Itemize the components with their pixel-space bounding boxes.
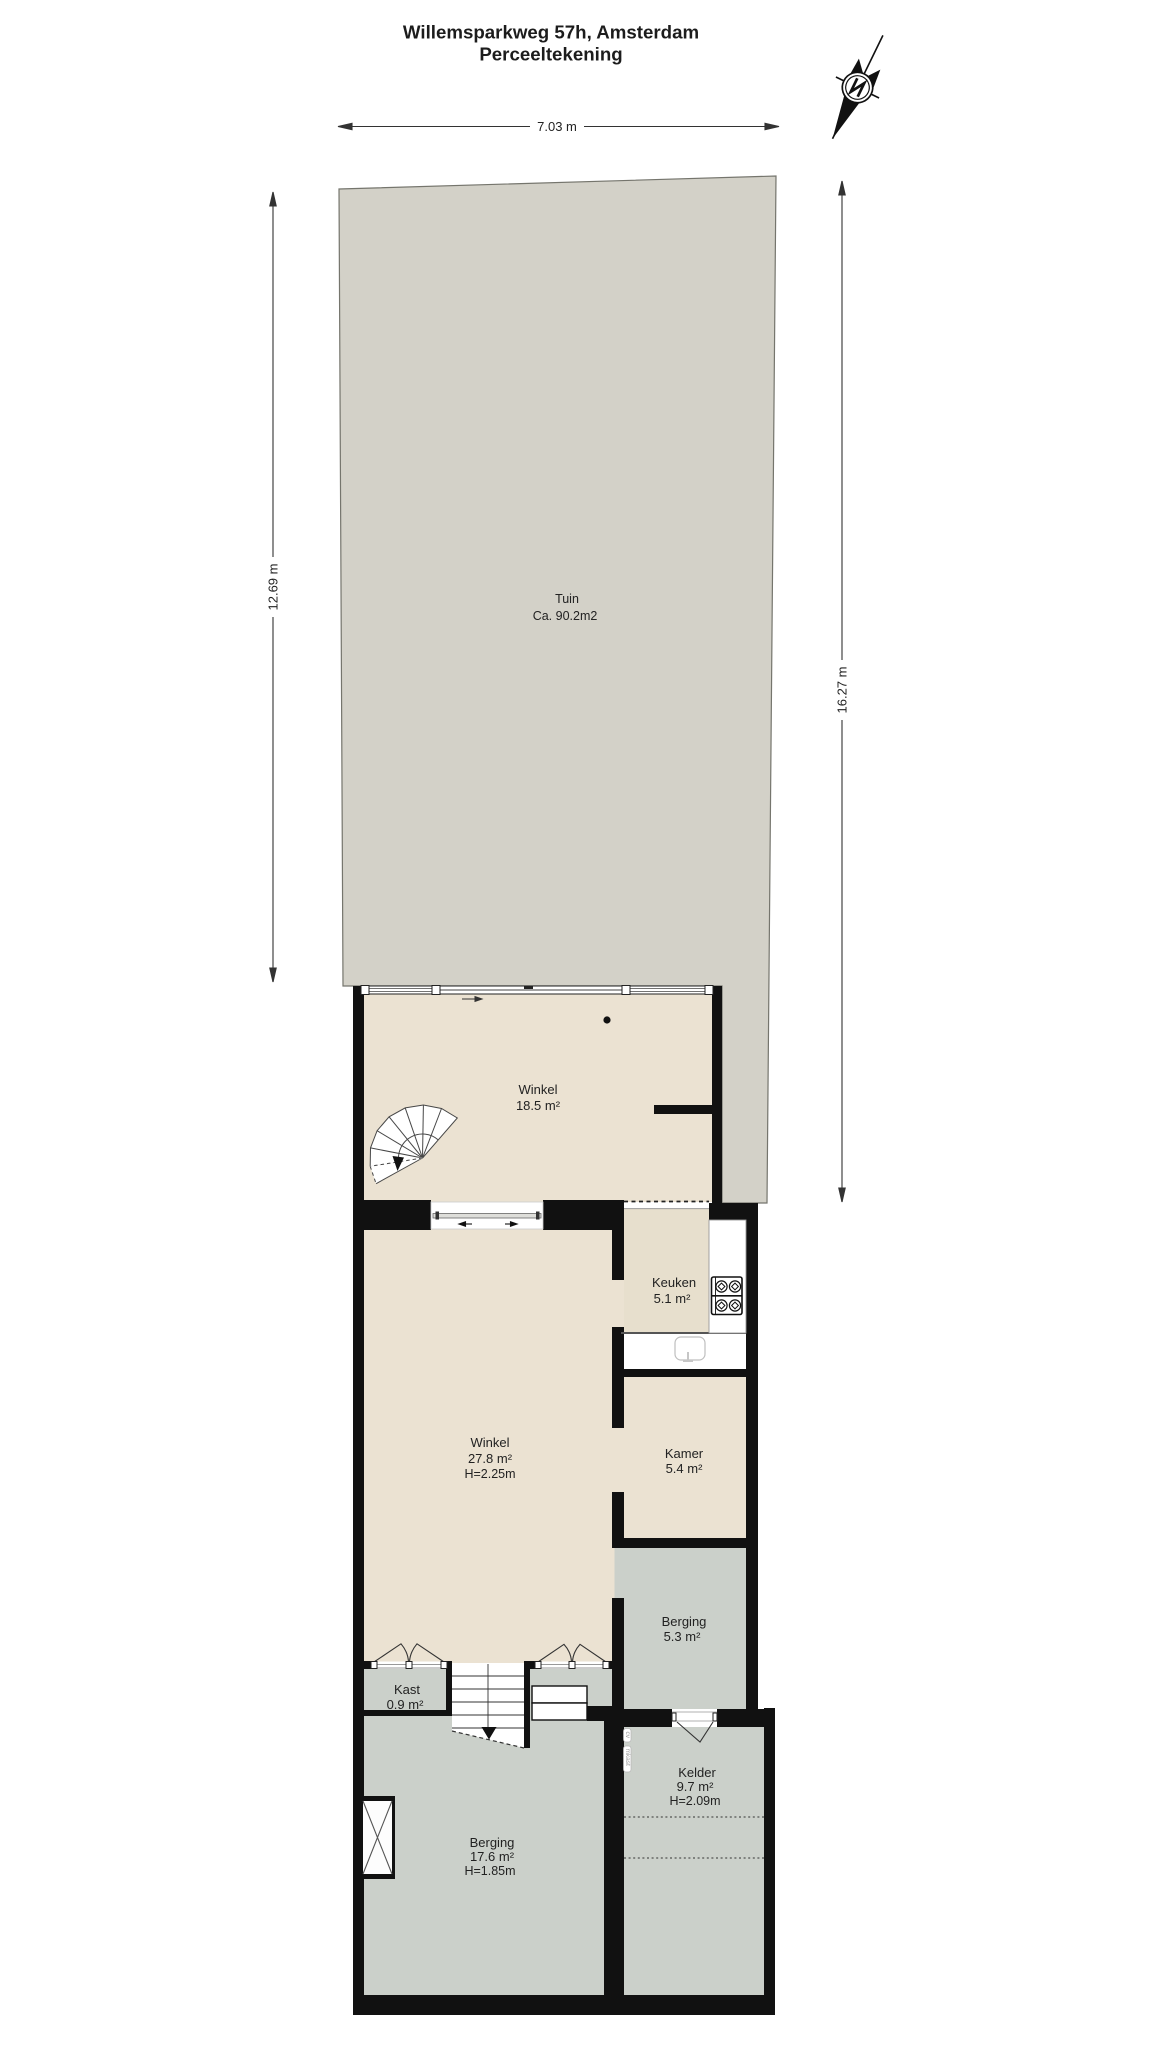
svg-text:H=2.09m: H=2.09m: [669, 1794, 720, 1808]
svg-text:Kamer: Kamer: [665, 1446, 704, 1461]
svg-text:0.9 m²: 0.9 m²: [387, 1697, 425, 1712]
svg-text:Ca. 90.2m2: Ca. 90.2m2: [533, 609, 598, 623]
svg-text:27.8 m²: 27.8 m²: [468, 1451, 513, 1466]
svg-text:5.1 m²: 5.1 m²: [654, 1291, 692, 1306]
svg-text:12.69 m: 12.69 m: [266, 564, 281, 611]
svg-text:Kast: Kast: [394, 1682, 420, 1697]
svg-text:Berging: Berging: [470, 1835, 515, 1850]
svg-text:Keuken: Keuken: [652, 1275, 696, 1290]
svg-text:16.27 m: 16.27 m: [835, 667, 850, 714]
svg-text:Willemsparkweg 57h, Amsterdam: Willemsparkweg 57h, Amsterdam: [403, 22, 699, 43]
svg-text:mkast: mkast: [624, 1749, 631, 1767]
svg-text:Winkel: Winkel: [518, 1082, 557, 1097]
svg-text:Kelder: Kelder: [678, 1765, 716, 1780]
svg-text:Tuin: Tuin: [555, 592, 579, 606]
svg-text:7.03 m: 7.03 m: [537, 119, 577, 134]
svg-text:H=1.85m: H=1.85m: [464, 1864, 515, 1878]
svg-text:5.3 m²: 5.3 m²: [664, 1629, 702, 1644]
svg-text:5.4 m²: 5.4 m²: [666, 1461, 704, 1476]
svg-text:9.7 m²: 9.7 m²: [677, 1779, 715, 1794]
svg-text:cv: cv: [624, 1732, 631, 1739]
svg-text:18.5 m²: 18.5 m²: [516, 1098, 561, 1113]
svg-text:H=2.25m: H=2.25m: [464, 1467, 515, 1481]
svg-text:Perceeltekening: Perceeltekening: [479, 44, 622, 65]
svg-text:Berging: Berging: [662, 1614, 707, 1629]
svg-text:17.6 m²: 17.6 m²: [470, 1849, 515, 1864]
svg-text:Winkel: Winkel: [470, 1435, 509, 1450]
